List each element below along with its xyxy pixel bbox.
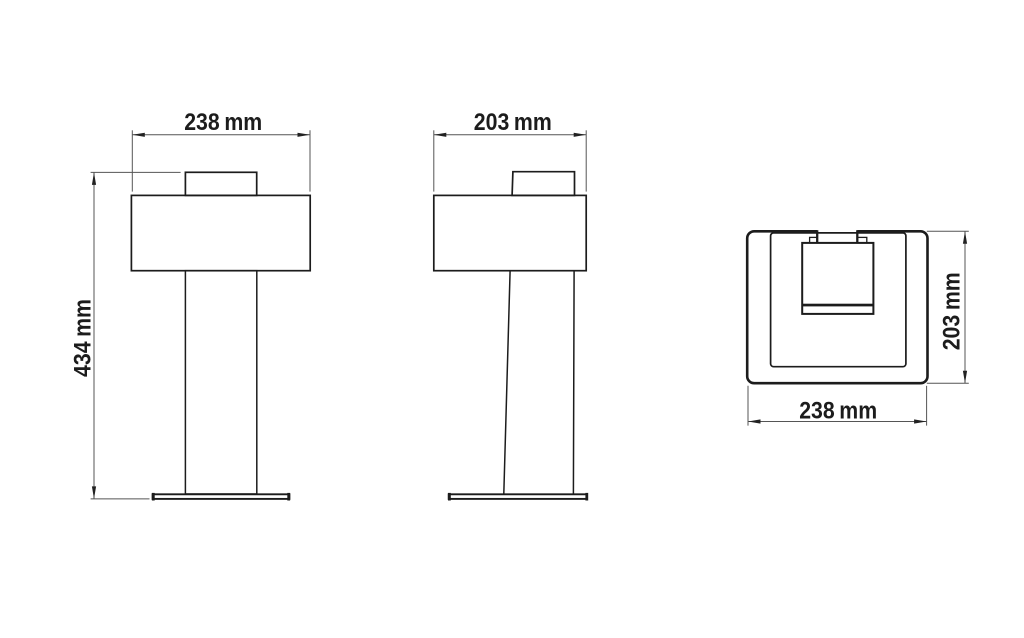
svg-text:238 mm: 238 mm	[184, 108, 262, 136]
svg-text:203 mm: 203 mm	[937, 272, 965, 350]
svg-text:434 mm: 434 mm	[68, 299, 96, 377]
svg-text:203 mm: 203 mm	[474, 108, 552, 136]
svg-text:238 mm: 238 mm	[799, 396, 877, 424]
